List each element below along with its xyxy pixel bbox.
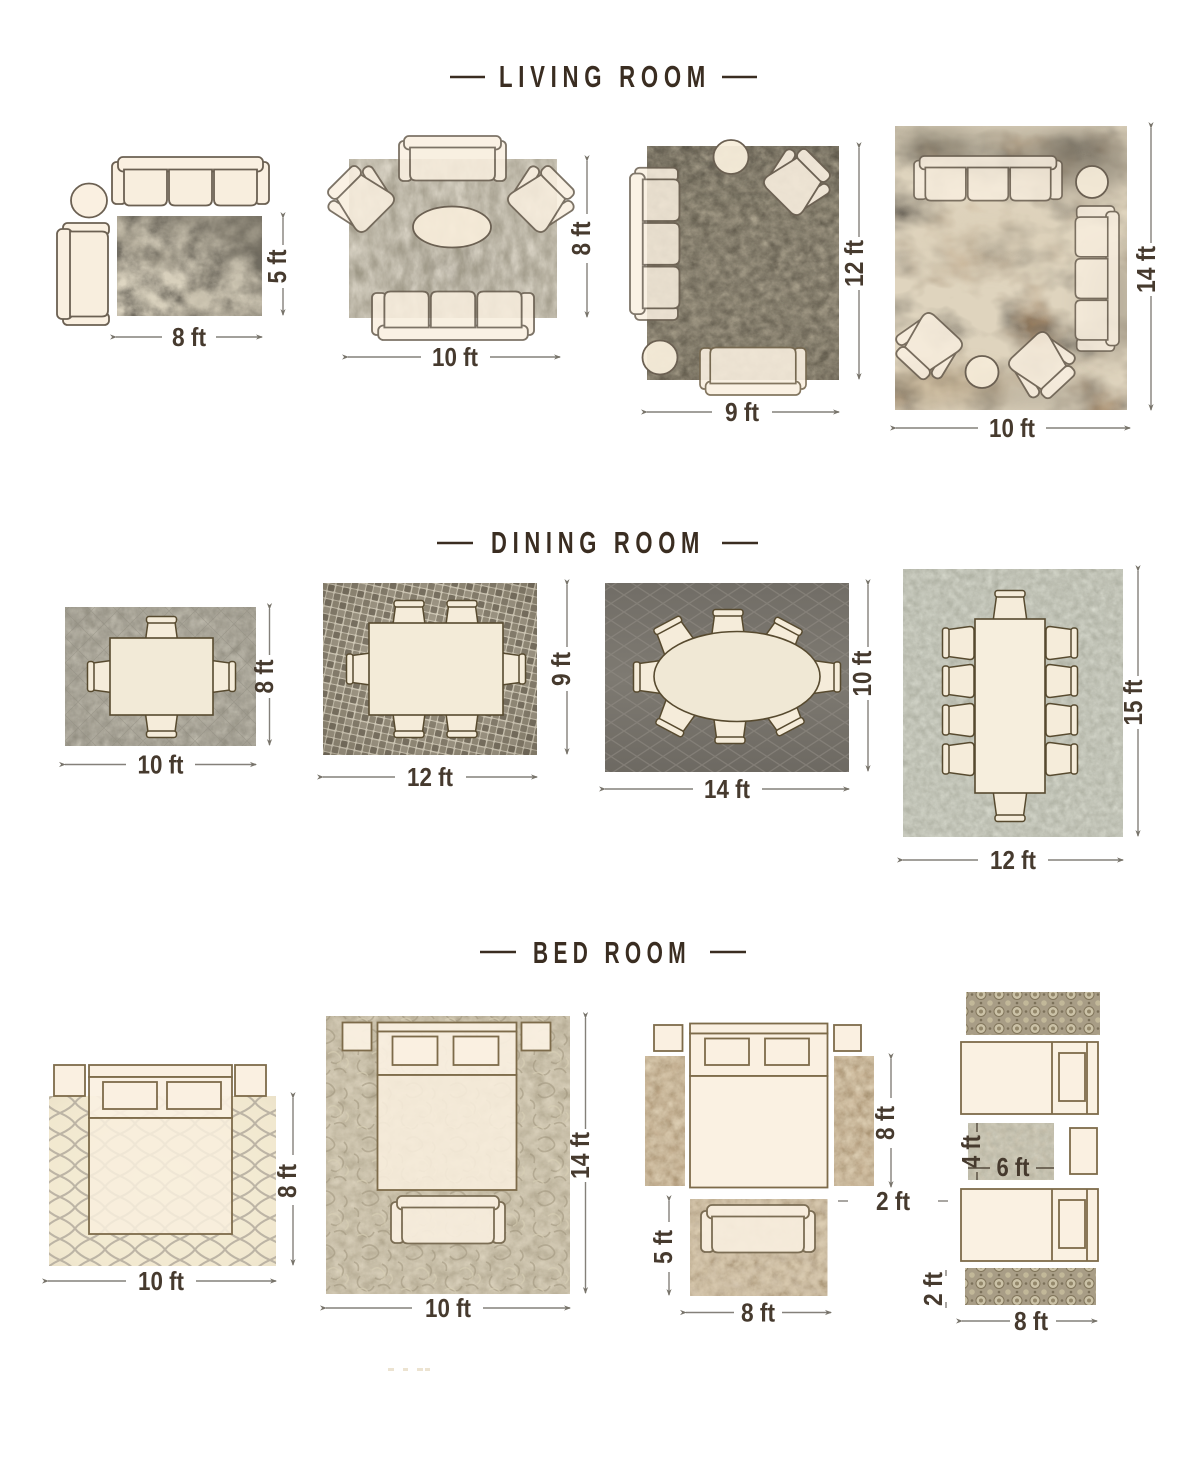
svg-text:8 ft: 8 ft — [870, 1106, 900, 1140]
svg-text:14 ft: 14 ft — [565, 1132, 595, 1179]
svg-text:9 ft: 9 ft — [725, 397, 759, 427]
svg-text:8 ft: 8 ft — [172, 322, 206, 352]
svg-text:8 ft: 8 ft — [566, 221, 596, 255]
svg-text:6 ft: 6 ft — [997, 1152, 1030, 1182]
svg-text:4 ft: 4 ft — [956, 1135, 986, 1168]
svg-text:8 ft: 8 ft — [741, 1298, 775, 1328]
svg-text:10 ft: 10 ft — [138, 750, 184, 780]
svg-text:DINING ROOM: DINING ROOM — [491, 525, 705, 560]
svg-text:10 ft: 10 ft — [432, 342, 478, 372]
svg-text:8 ft: 8 ft — [1014, 1306, 1048, 1336]
svg-text:10 ft: 10 ft — [425, 1293, 471, 1323]
svg-text:10 ft: 10 ft — [138, 1266, 184, 1296]
svg-text:8 ft: 8 ft — [272, 1164, 302, 1198]
svg-text:5 ft: 5 ft — [648, 1230, 678, 1264]
svg-text:8 ft: 8 ft — [249, 659, 279, 693]
svg-text:14 ft: 14 ft — [1131, 246, 1161, 293]
svg-text:10 ft: 10 ft — [989, 413, 1035, 443]
svg-text:2 ft: 2 ft — [876, 1186, 910, 1216]
svg-text:12 ft: 12 ft — [990, 845, 1036, 875]
svg-text:12 ft: 12 ft — [407, 762, 453, 792]
svg-text:BED ROOM: BED ROOM — [533, 935, 691, 970]
svg-text:12 ft: 12 ft — [839, 240, 869, 287]
svg-text:5 ft: 5 ft — [262, 249, 292, 283]
svg-text:9 ft: 9 ft — [546, 652, 576, 686]
svg-text:14 ft: 14 ft — [704, 774, 750, 804]
svg-text:15 ft: 15 ft — [1118, 679, 1148, 725]
svg-text:2 ft: 2 ft — [918, 1272, 948, 1306]
svg-text:10 ft: 10 ft — [847, 650, 877, 696]
svg-text:LIVING ROOM: LIVING ROOM — [499, 59, 711, 94]
